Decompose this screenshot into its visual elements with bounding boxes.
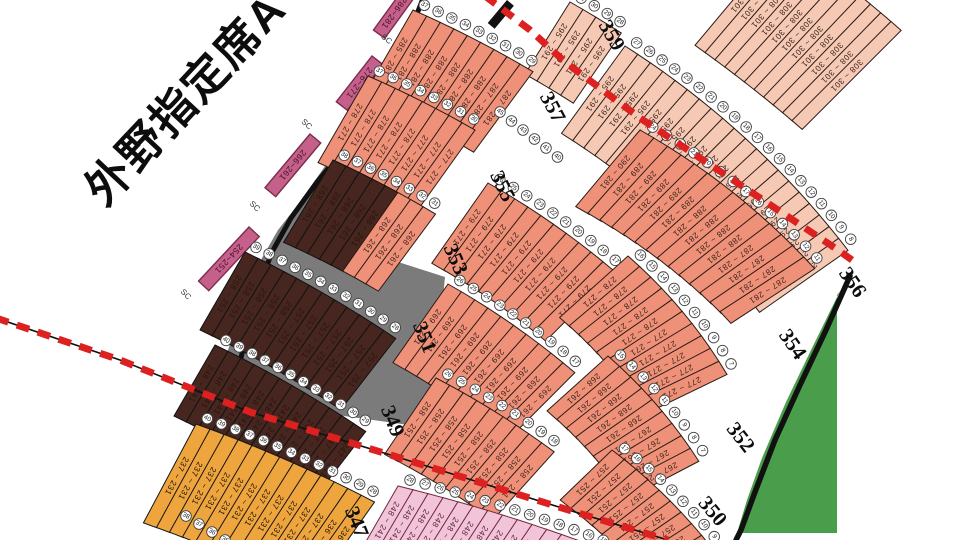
section-label-354: 354 [774,324,812,364]
stadium-seat-map: 286~281276~271266~261254~251SCSCSCSC 309… [0,0,960,540]
sc-label: SC [179,287,193,301]
title-layer: 外野指定席A [75,0,296,215]
sc-label: SC [300,117,314,131]
area-title: 外野指定席A [75,0,296,215]
sc-label: SC [248,199,262,213]
sc-bar-label: 266~261 [277,148,308,183]
section-label-352: 352 [722,417,760,457]
stadium-seat-map-page: 286~281276~271266~261254~251SCSCSCSC 309… [0,0,960,540]
